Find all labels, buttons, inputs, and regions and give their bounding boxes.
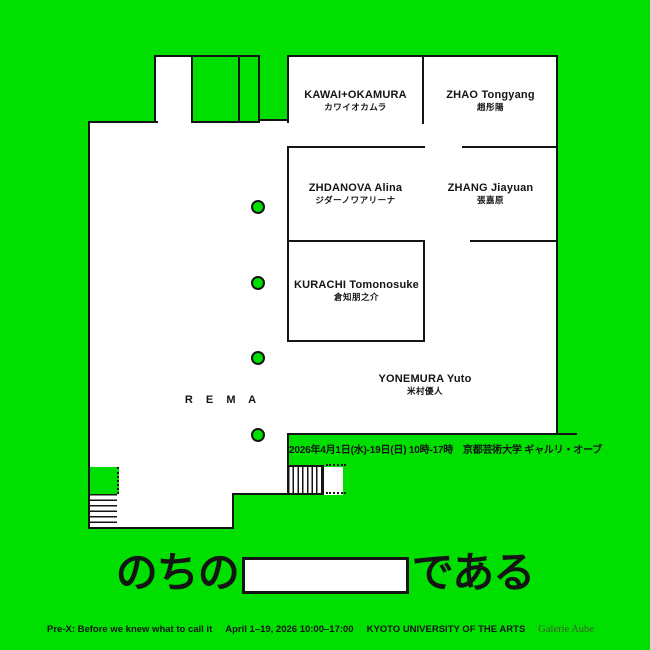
artist-name-en: ZHANG Jiayuan: [424, 182, 557, 195]
green-dot-marker: [251, 428, 265, 442]
tagline-after: である: [412, 551, 535, 595]
artist-name-ja: 趙彤陽: [424, 102, 557, 112]
room-label-zhang-jiayuan: ZHANG Jiayuan 張嘉原: [424, 182, 557, 205]
tagline: のちの である: [0, 551, 650, 595]
floorplan-bottom-mid: [232, 434, 287, 495]
wall-segment: [88, 121, 158, 123]
footer-exhibition-title: Pre-X: Before we knew what to call it: [47, 624, 212, 635]
wall-segment: [287, 146, 289, 342]
room-label-zhdanova-alina: ZHDANOVA Alina ジダーノワアリーナ: [289, 182, 422, 205]
courtyard-notch: [191, 55, 260, 123]
tagline-before: のちの: [116, 551, 239, 595]
exhibition-poster: KAWAI+OKAMURA カワイオカムラ ZHAO Tongyang 趙彤陽 …: [0, 0, 650, 650]
wall-segment: [462, 146, 558, 148]
footer-dates: April 1–19, 2026 10:00–17:00: [225, 624, 353, 635]
artist-name-ja: カワイオカムラ: [289, 102, 422, 112]
room-label-yonemura-yuto: YONEMURA Yuto 米村優人: [350, 373, 500, 396]
wall-segment: [287, 146, 425, 148]
artist-name-en: ZHDANOVA Alina: [289, 182, 422, 195]
wall-segment: [556, 55, 558, 435]
green-dot-marker: [251, 200, 265, 214]
wall-segment: [232, 493, 234, 529]
dotted-opening-line: [326, 464, 346, 466]
green-dot-marker: [251, 351, 265, 365]
dotted-opening-line: [326, 492, 346, 494]
wall-segment: [470, 240, 558, 242]
wall-segment: [287, 240, 425, 242]
footer-venue: KYOTO UNIVERSITY OF THE ARTS: [367, 624, 526, 635]
wall-segment: [287, 433, 577, 435]
footer-gallery-name: Galerie Aube: [538, 624, 594, 635]
wall-segment: [154, 55, 156, 123]
artist-name-en: KURACHI Tomonosuke: [289, 279, 424, 292]
artist-name-ja: 張嘉原: [424, 195, 557, 205]
room-label-kurachi-tomonosuke: KURACHI Tomonosuke 倉知朋之介: [289, 279, 424, 302]
artist-name-ja: ジダーノワアリーナ: [289, 195, 422, 205]
artist-name-ja: 米村優人: [350, 386, 500, 396]
green-dot-marker: [251, 276, 265, 290]
wall-segment: [238, 57, 240, 121]
artist-name-en: ZHAO Tongyang: [424, 89, 557, 102]
wall-segment: [88, 527, 234, 529]
stair-landing-nook: [90, 467, 119, 494]
tagline-blank-box: [242, 557, 409, 594]
rema-label: R E M A: [168, 394, 278, 406]
artist-name-ja: 倉知朋之介: [289, 292, 424, 302]
artist-name-en: KAWAI+OKAMURA: [289, 89, 422, 102]
wall-segment: [287, 340, 425, 342]
footer: Pre-X: Before we knew what to call it Ap…: [47, 624, 594, 635]
floorplan-corridor: [156, 57, 193, 123]
room-label-zhao-tongyang: ZHAO Tongyang 趙彤陽: [424, 89, 557, 112]
wall-segment: [154, 55, 195, 57]
stairs-hatch: [90, 494, 117, 527]
stairs-hatch: [288, 465, 323, 495]
exhibition-date-line: 2026年4月1日(水)-19日(日) 10時-17時 京都芸術大学 ギャルリ・…: [289, 441, 575, 456]
artist-name-en: YONEMURA Yuto: [350, 373, 500, 386]
wall-segment: [258, 119, 289, 121]
room-label-kawai-okamura: KAWAI+OKAMURA カワイオカムラ: [289, 89, 422, 112]
